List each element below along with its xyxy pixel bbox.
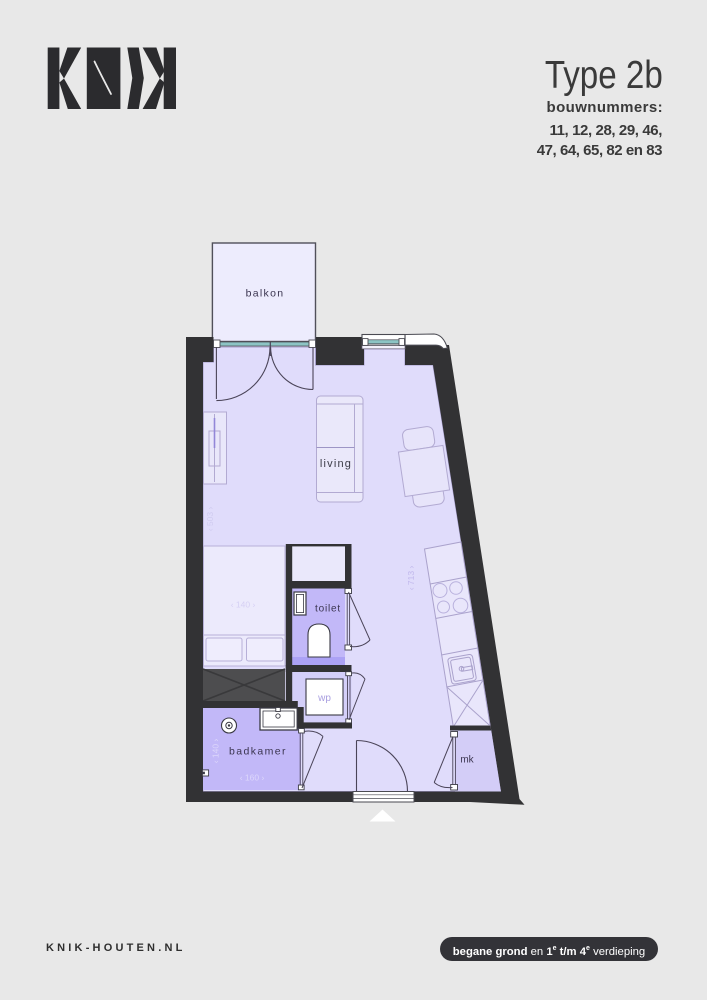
svg-text:‹ 713 ›: ‹ 713 › bbox=[406, 566, 416, 591]
svg-text:badkamer: badkamer bbox=[229, 746, 287, 758]
svg-text:‹ 160 ›: ‹ 160 › bbox=[240, 773, 265, 783]
svg-text:wp: wp bbox=[317, 693, 331, 704]
svg-text:‹ 140 ›: ‹ 140 › bbox=[211, 739, 221, 764]
svg-text:toilet: toilet bbox=[315, 604, 341, 615]
svg-text:mk: mk bbox=[460, 755, 474, 766]
svg-text:‹ 503 ›: ‹ 503 › bbox=[205, 507, 215, 532]
svg-text:living: living bbox=[320, 458, 352, 470]
svg-text:‹ 140 ›: ‹ 140 › bbox=[231, 600, 256, 610]
svg-text:balkon: balkon bbox=[246, 288, 285, 300]
